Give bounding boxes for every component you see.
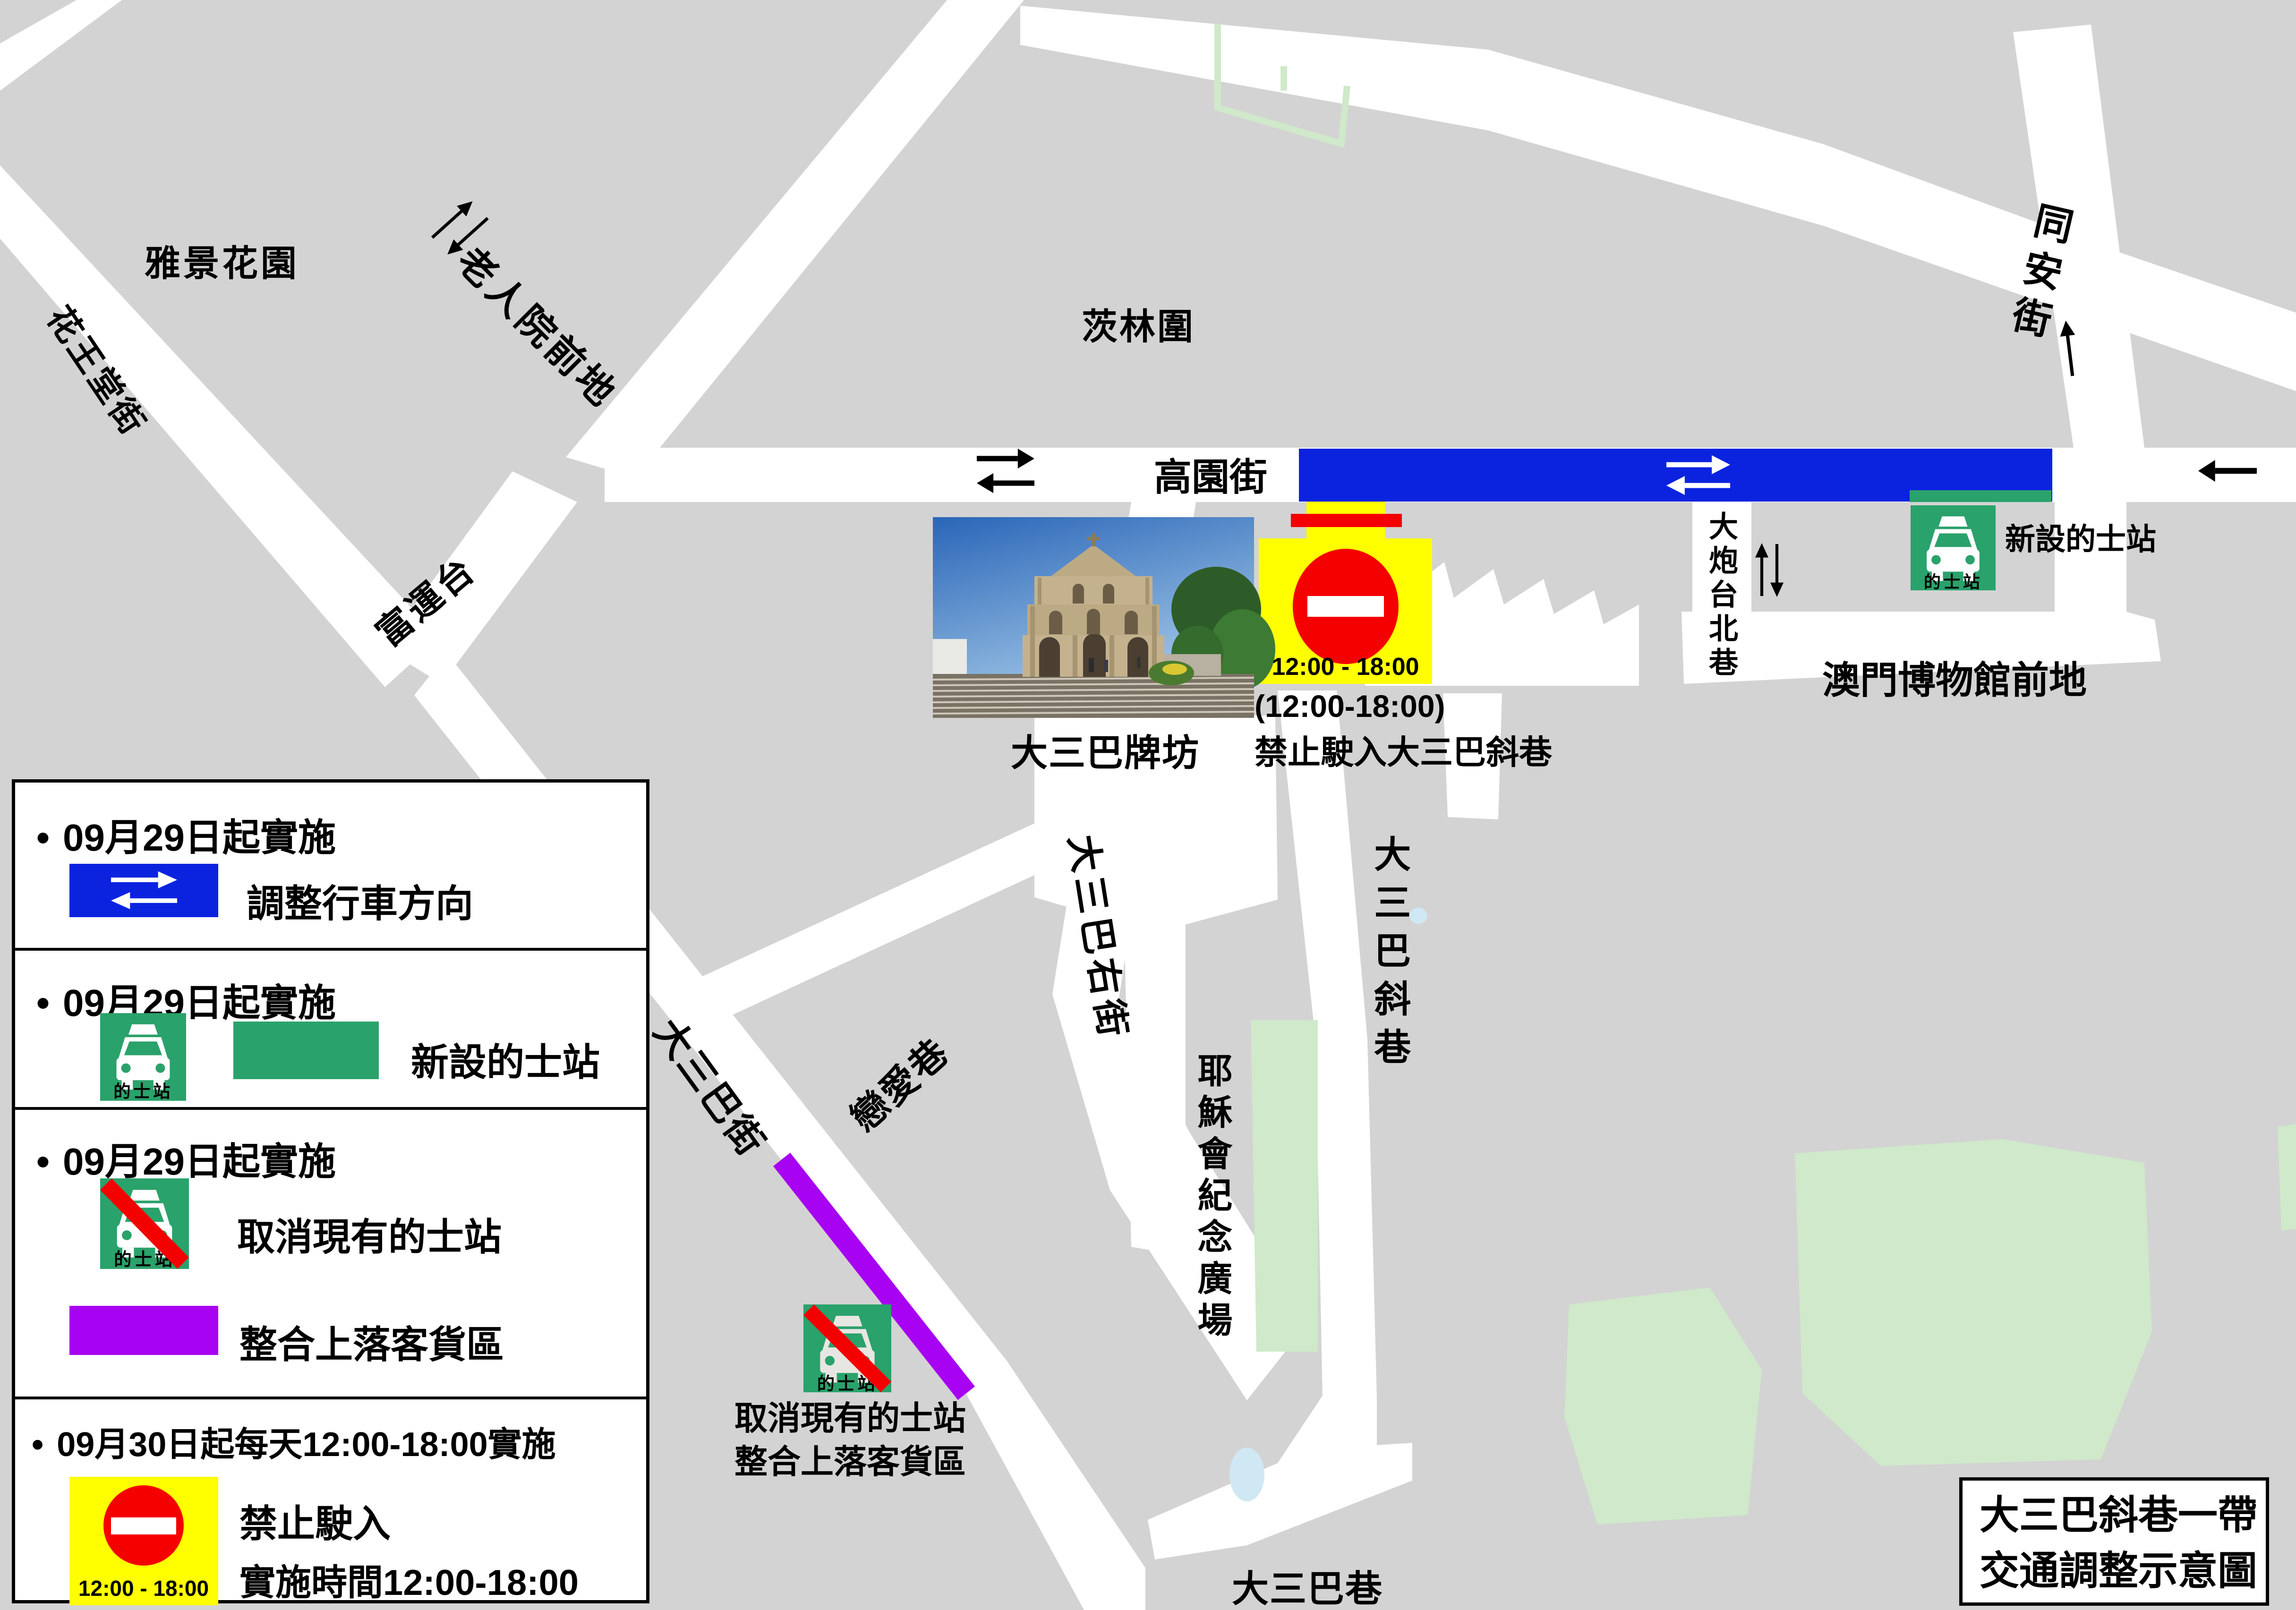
label-tongan-street: 同安街 bbox=[2001, 198, 2074, 349]
label-dasanba-xiexiang: 大三巴斜巷 bbox=[1370, 835, 1409, 1076]
label-lianai-lane: 戀愛巷 bbox=[844, 1031, 956, 1138]
map-title-box: 大三巴斜巷一帶 交通調整示意圖 bbox=[1959, 1477, 2269, 1606]
legend-divider-1 bbox=[15, 948, 646, 951]
bullet-icon: • bbox=[32, 1425, 43, 1464]
label-yajing-garden: 雅景花園 bbox=[145, 245, 299, 283]
legend-panel: •09月29日起實施 調整行車方向 •09月29日起實施 的士站 bbox=[12, 779, 649, 1603]
bullet-icon: • bbox=[36, 981, 50, 1025]
legend-new-taxi-icon: 的士站 bbox=[100, 1013, 186, 1101]
label-jesuit-square: 耶穌會紀念廣場 bbox=[1193, 1052, 1231, 1343]
traffic-map-canvas: 的士站 的士站 bbox=[0, 0, 2296, 1610]
label-dapaotai-north-lane: 大炮台北巷 bbox=[1704, 511, 1736, 681]
legend-item4-desc2: 實施時間12:00-18:00 bbox=[239, 1553, 579, 1605]
legend-item4-date: •09月30日起每天12:00-18:00實施 bbox=[32, 1416, 556, 1466]
label-laorenyuan-qiandi: 老人院前地 bbox=[449, 240, 625, 416]
legend-item1-desc: 調整行車方向 bbox=[247, 873, 473, 928]
label-ruins-stpaul: 大三巴牌坊 bbox=[1011, 733, 1200, 773]
label-gaoyuan-street: 高園街 bbox=[1154, 457, 1267, 498]
map-title-line1: 大三巴斜巷一帶 bbox=[1980, 1487, 2266, 1543]
map-title-line2: 交通調整示意圖 bbox=[1980, 1543, 2266, 1599]
legend-item3-date: •09月29日起實施 bbox=[36, 1131, 336, 1186]
label-huawangtang-street: 花王堂街 bbox=[40, 300, 153, 443]
legend-cancel-taxi-icon: 的士站 bbox=[100, 1178, 189, 1269]
labels-layer: 雅景花園 花王堂街 老人院前地 富運台 茨林圍 高園街 同安街 大炮台北巷 澳門… bbox=[0, 0, 2296, 1610]
legend-no-entry-icon: 12:00 - 18:00 bbox=[69, 1477, 218, 1605]
label-cancel-taxi-2: 整合上落客貨區 bbox=[685, 1444, 1016, 1480]
legend-item2-desc: 新設的士站 bbox=[411, 1032, 600, 1087]
legend-sign-time-text: 12:00 - 18:00 bbox=[78, 1576, 209, 1601]
label-dasanba-lane: 大三巴巷 bbox=[1232, 1569, 1383, 1609]
legend-item1-date-text: 09月29日起實施 bbox=[63, 817, 336, 859]
legend-item3-date-text: 09月29日起實施 bbox=[63, 1141, 336, 1183]
bullet-icon: • bbox=[36, 1140, 50, 1184]
label-sign-time-map: 12:00 - 18:00 bbox=[1259, 654, 1432, 680]
label-museum-square: 澳門博物館前地 bbox=[1822, 660, 2087, 701]
label-cilin-wei: 茨林圍 bbox=[1082, 308, 1195, 347]
label-new-taxi-station-map: 新設的士站 bbox=[2005, 523, 2156, 556]
label-sign-time-paren: (12:00-18:00) bbox=[1255, 690, 1445, 723]
legend-item3-desc: 取消現有的士站 bbox=[237, 1207, 502, 1261]
legend-item3-desc2: 整合上落客貨區 bbox=[239, 1314, 504, 1369]
label-sign-no-entry-street: 禁止駛入大三巴斜巷 bbox=[1255, 735, 1552, 771]
legend-divider-2 bbox=[15, 1107, 646, 1110]
label-cancel-taxi-1: 取消現有的士站 bbox=[685, 1401, 1016, 1437]
label-dasanba-right-street: 大三巴右街 bbox=[1062, 832, 1134, 1044]
legend-purple-swatch bbox=[69, 1306, 218, 1355]
bullet-icon: • bbox=[36, 816, 50, 860]
legend-item1-date: •09月29日起實施 bbox=[36, 807, 336, 862]
label-dasanba-street: 大三巴街 bbox=[646, 1012, 772, 1164]
legend-item4-desc: 禁止駛入 bbox=[239, 1493, 391, 1548]
legend-blue-two-way-icon bbox=[69, 864, 218, 917]
legend-divider-3 bbox=[15, 1397, 646, 1399]
taxi-sign-text: 的士站 bbox=[113, 1082, 173, 1101]
legend-green-strip-swatch bbox=[233, 1022, 379, 1079]
label-fuyuntai: 富運台 bbox=[369, 550, 483, 654]
legend-item4-date-text: 09月30日起每天12:00-18:00實施 bbox=[57, 1426, 555, 1464]
